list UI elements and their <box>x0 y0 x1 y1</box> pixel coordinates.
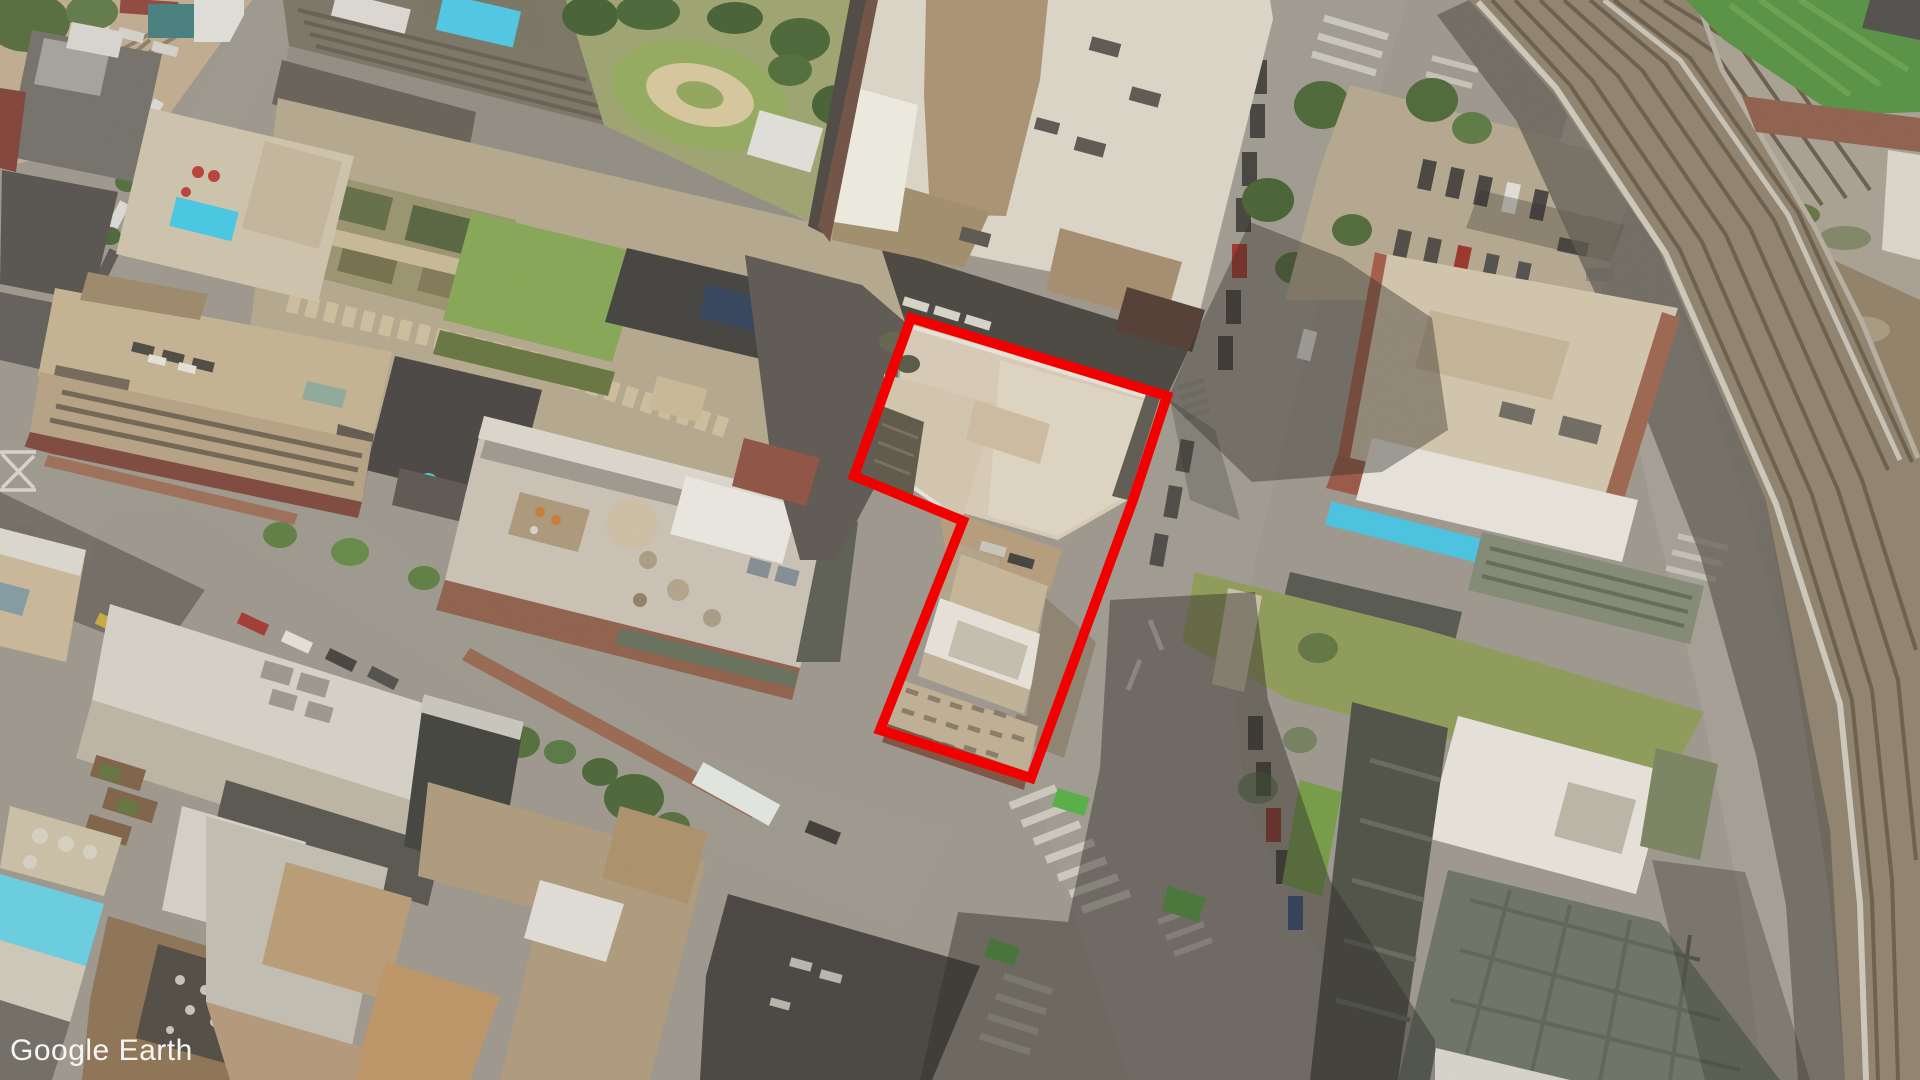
svg-text:Google Earth: Google Earth <box>10 1034 193 1067</box>
